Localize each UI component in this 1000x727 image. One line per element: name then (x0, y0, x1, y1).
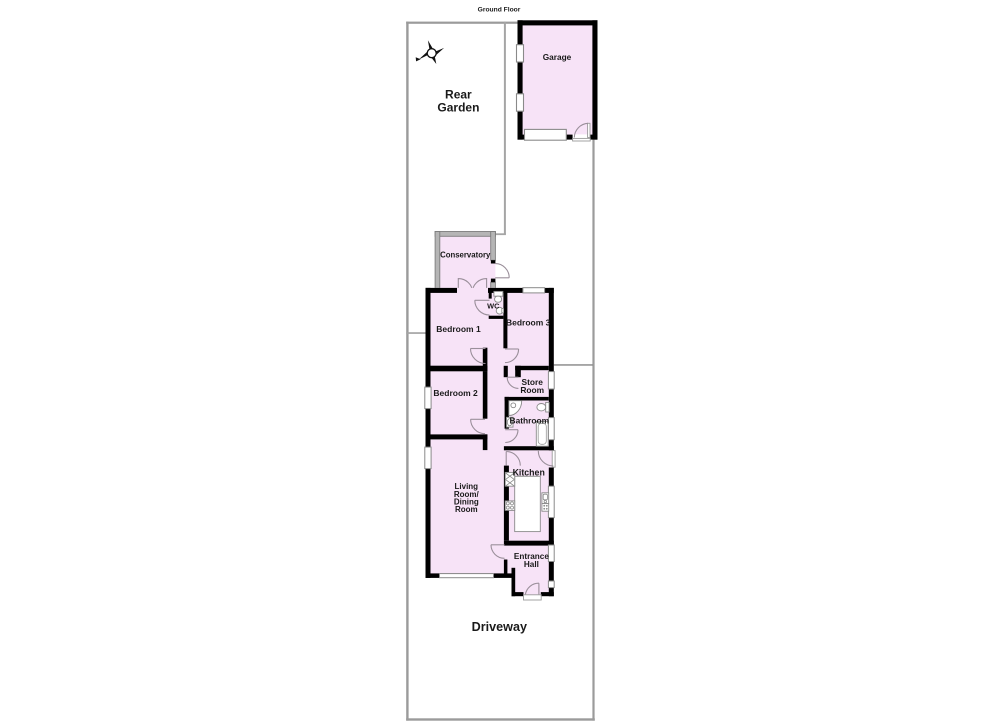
svg-text:Ground Floor: Ground Floor (478, 6, 521, 13)
svg-text:Bedroom 1: Bedroom 1 (436, 324, 481, 334)
svg-text:Bathroom: Bathroom (510, 416, 550, 426)
svg-text:Kitchen: Kitchen (513, 468, 545, 478)
svg-text:Garage: Garage (543, 52, 572, 62)
svg-text:Room: Room (455, 505, 478, 514)
svg-text:Bedroom 3: Bedroom 3 (506, 318, 551, 328)
svg-text:Garden: Garden (437, 101, 479, 115)
svg-text:WC: WC (487, 301, 500, 310)
svg-text:Conservatory: Conservatory (440, 250, 491, 259)
svg-text:Room: Room (520, 385, 544, 395)
svg-text:Rear: Rear (445, 88, 472, 102)
svg-text:Bedroom 2: Bedroom 2 (433, 388, 478, 398)
svg-text:Driveway: Driveway (472, 620, 527, 634)
svg-text:Hall: Hall (524, 560, 539, 569)
